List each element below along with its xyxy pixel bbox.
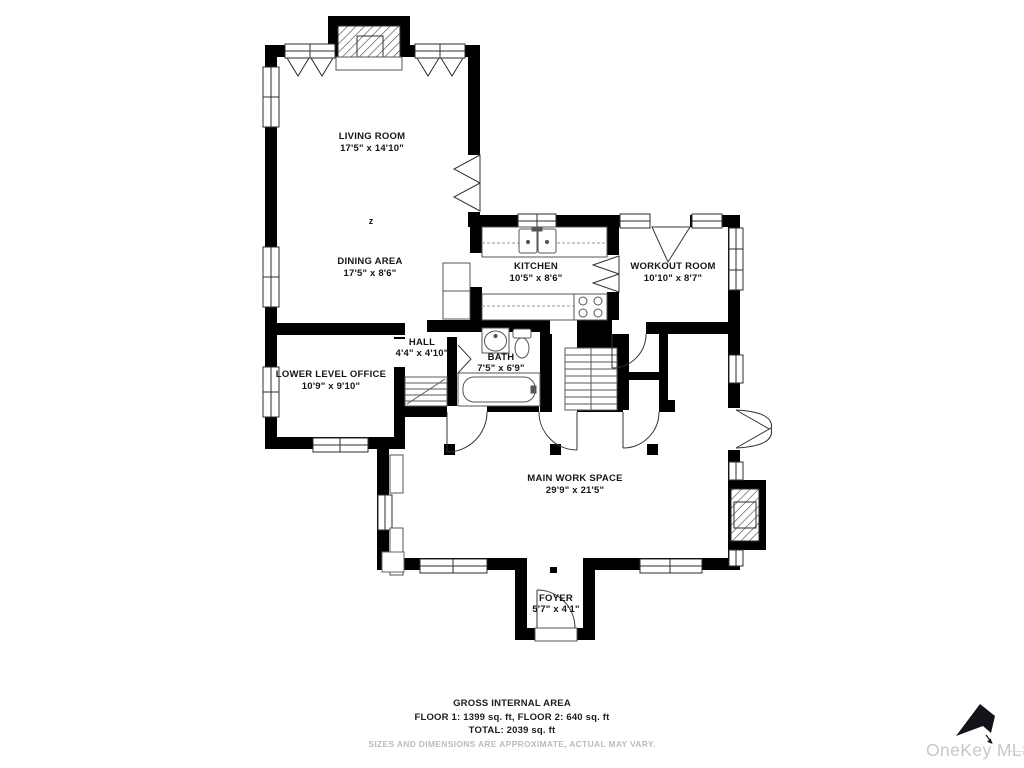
foyer-label: FOYER — [539, 593, 573, 604]
stove-icon — [574, 294, 607, 320]
stairs-hall — [405, 377, 447, 406]
dining-cabinets — [443, 263, 470, 319]
walls — [265, 16, 766, 640]
bath-sink-icon — [482, 328, 509, 353]
floor-areas-line: FLOOR 1: 1399 sq. ft, FLOOR 2: 640 sq. f… — [0, 711, 1024, 725]
kitchen-sink-icon — [519, 227, 556, 253]
window-main-right-2 — [729, 550, 743, 566]
disclaimer-line: SIZES AND DIMENSIONS ARE APPROXIMATE, AC… — [0, 738, 1024, 751]
kitchen-counter-top — [482, 227, 607, 257]
main-work-space-label: MAIN WORK SPACE — [527, 473, 622, 484]
fireplace-top-icon — [336, 26, 402, 70]
dining-area-label: DINING AREA — [337, 256, 402, 267]
window-main-bottom-2 — [640, 559, 702, 573]
area-summary: GROSS INTERNAL AREA FLOOR 1: 1399 sq. ft… — [0, 697, 1024, 751]
workout-room-dims: 10'10" x 8'7" — [644, 273, 702, 284]
office-label: LOWER LEVEL OFFICE — [276, 369, 386, 380]
window-office-bottom — [313, 438, 368, 452]
columns — [444, 444, 658, 573]
kitchen-counter-bottom — [482, 294, 607, 320]
bath-dims: 7'5" x 6'9" — [477, 363, 524, 374]
stairs-main — [565, 348, 617, 410]
toilet-icon — [513, 329, 531, 358]
bath-label: BATH — [488, 352, 515, 363]
floor-plan-svg: LIVING ROOM 17'5" x 14'10" z DINING AREA… — [0, 0, 1024, 768]
gross-internal-area-label: GROSS INTERNAL AREA — [0, 697, 1024, 711]
window-main-left — [378, 495, 392, 530]
kitchen-dims: 10'5" x 8'6" — [510, 273, 563, 284]
foyer-stoop — [535, 628, 577, 641]
window-kitchen-top — [518, 214, 556, 228]
window-main-bottom-1 — [420, 559, 487, 573]
closet-bifold-icon — [458, 345, 471, 373]
watermark-rule — [1010, 751, 1024, 752]
workout-room-label: WORKOUT ROOM — [630, 261, 715, 272]
workout-top-door-icon — [652, 227, 690, 262]
floor-plan-page: LIVING ROOM 17'5" x 14'10" z DINING AREA… — [0, 0, 1024, 768]
bathtub-icon — [458, 373, 540, 406]
compass-mark: z — [369, 216, 374, 226]
hall-label: HALL — [409, 337, 435, 348]
window-living-top-2 — [415, 44, 465, 76]
fireplace-right-icon — [731, 489, 759, 541]
foyer-dims: 5'7" x 4'1" — [532, 604, 579, 615]
window-workout-right — [729, 228, 743, 290]
office-dims: 10'9" x 9'10" — [302, 381, 360, 392]
onekey-mls-watermark: OneKey MLS — [926, 700, 1022, 764]
window-living-top-1 — [285, 44, 335, 76]
window-living-left — [263, 67, 279, 127]
dining-area-dims: 17'5" x 8'6" — [344, 268, 397, 279]
hall-dims: 4'4" x 4'10" — [396, 348, 449, 359]
kitchen-label: KITCHEN — [514, 261, 558, 272]
window-workout-top-2 — [692, 214, 722, 228]
window-nook-right — [729, 355, 743, 383]
window-workout-top-1 — [620, 214, 650, 228]
living-room-dims: 17'5" x 14'10" — [340, 143, 404, 154]
window-main-right-1 — [729, 462, 743, 480]
living-room-label: LIVING ROOM — [339, 131, 406, 142]
total-area-line: TOTAL: 2039 sq. ft — [0, 724, 1024, 738]
window-dining-left — [263, 247, 279, 307]
main-door-c-icon — [623, 412, 659, 448]
main-work-space-dims: 29'9" x 21'5" — [546, 485, 604, 496]
onekey-mls-label: OneKey MLS — [926, 740, 1022, 761]
